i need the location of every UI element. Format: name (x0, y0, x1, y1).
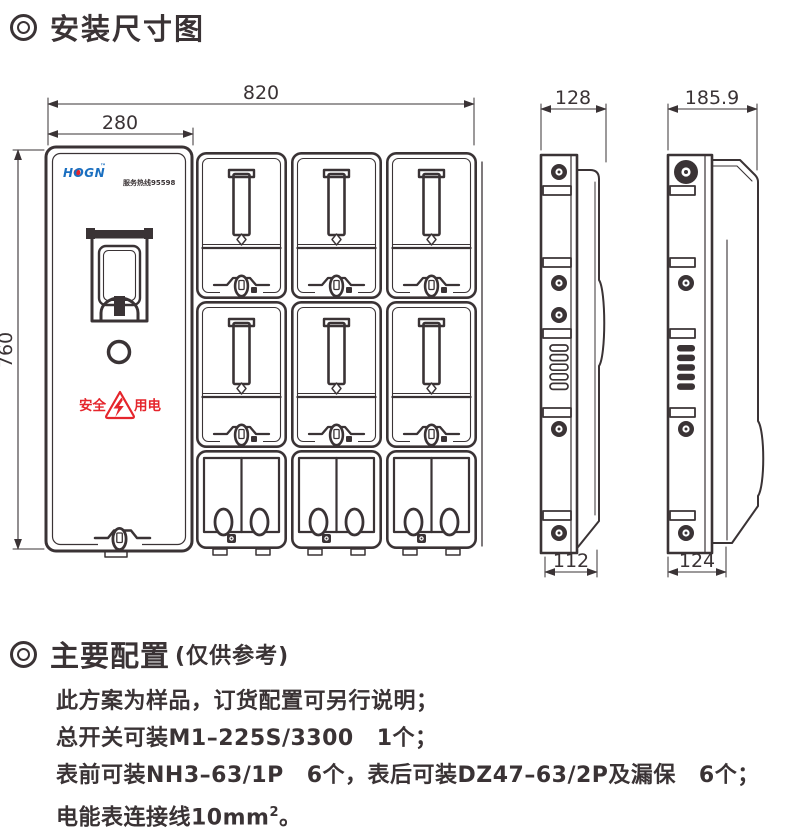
side-view-right: 185.9 124 (668, 87, 763, 577)
svg-text:760: 760 (0, 332, 17, 368)
screw-icon (551, 307, 567, 323)
screw-icon (551, 525, 567, 541)
vent-slots (550, 345, 568, 389)
front-view: HOGN ™ 服务热线95598 安全 用电 (0, 82, 482, 557)
trademark-mark: ™ (100, 163, 106, 170)
config-text: 此方案为样品，订货配置可另行说明； 总开关可装M1–225S/3300 1个； … (56, 683, 760, 836)
meter-compartment (387, 153, 475, 297)
dim-height-760: 760 (0, 150, 44, 549)
svg-text:280: 280 (102, 112, 138, 134)
breaker-compartment (292, 451, 380, 555)
meter-compartment (197, 302, 285, 446)
config-heading: 主要配置 (50, 633, 170, 675)
main-switch-door: HOGN ™ 服务热线95598 安全 用电 (46, 147, 192, 557)
screw-icon (551, 275, 567, 291)
lock-hole (109, 342, 130, 363)
screw-icon (551, 164, 567, 180)
svg-text:112: 112 (553, 550, 589, 572)
screw-icon (678, 275, 694, 291)
warning-triangle-icon (106, 392, 134, 418)
service-hotline: 服务热线95598 (123, 178, 175, 187)
screw-icon (678, 525, 694, 541)
breaker-compartment (387, 451, 475, 555)
breaker-compartment (197, 451, 285, 555)
meter-compartment (197, 153, 285, 297)
brand-logo: HOGN (63, 166, 105, 180)
superscript-2: 2 (269, 805, 279, 820)
config-heading-row: 主要配置 (仅供参考) (10, 633, 289, 675)
svg-text:185.9: 185.9 (685, 87, 739, 109)
safety-warning: 安全 用电 (79, 392, 161, 418)
screw-icon (551, 421, 567, 437)
meter-compartment (387, 302, 475, 446)
large-screw-icon (674, 160, 698, 184)
bullseye-icon (10, 641, 37, 668)
meter-compartment (292, 302, 380, 446)
dim-panel-280: 280 (48, 112, 193, 145)
side-view-left: 128 112 (541, 87, 606, 577)
config-line-1: 此方案为样品，订货配置可另行说明； (56, 683, 760, 720)
svg-text:820: 820 (243, 82, 279, 104)
dim-base-112: 112 (545, 550, 597, 577)
meter-compartment (292, 153, 380, 297)
svg-text:128: 128 (555, 87, 591, 109)
main-breaker-window (86, 228, 153, 321)
config-line-4: 电能表连接线10mm2。 (56, 794, 760, 836)
warning-text-right: 用电 (134, 397, 161, 414)
svg-text:124: 124 (679, 550, 715, 572)
dim-depth-128: 128 (541, 87, 606, 162)
warning-text-left: 安全 (79, 397, 106, 414)
config-heading-note: (仅供参考) (175, 638, 289, 670)
config-line-3: 表前可装NH3–63/1P 6个，表后可装DZ47–63/2P及漏保 6个； (56, 757, 760, 794)
config-line-2: 总开关可装M1–225S/3300 1个； (56, 720, 760, 757)
dim-base-124: 124 (668, 547, 726, 577)
vent-slots (677, 345, 695, 390)
screw-icon (678, 421, 694, 437)
